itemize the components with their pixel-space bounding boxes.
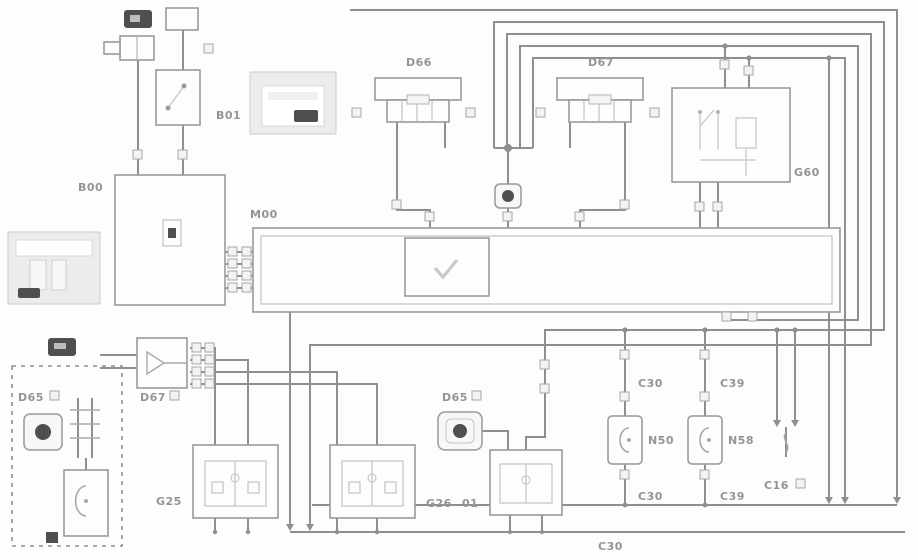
siren-connector <box>104 36 154 60</box>
label-c16: C16 <box>764 479 789 492</box>
connector-d66 <box>375 78 461 122</box>
lock-actuator-g26 <box>330 445 415 518</box>
label-g25: G25 <box>156 495 182 508</box>
label-n58: N58 <box>728 434 754 447</box>
label-c39-top: C39 <box>720 377 745 390</box>
label-d65-mid: D65 <box>442 391 468 404</box>
siren-icon <box>124 10 152 28</box>
lock-actuator-g25 <box>193 445 278 518</box>
label-b00: B00 <box>78 181 103 194</box>
label-b01: B01 <box>216 109 241 122</box>
harness-box-m00 <box>253 228 840 312</box>
junction-sensor-icon <box>495 184 521 208</box>
connector-d67 <box>557 78 643 122</box>
label-c30-top: C30 <box>638 377 663 390</box>
label-c30-ground: C30 <box>598 540 623 553</box>
legend-box-left <box>8 232 100 304</box>
label-g26: G26 <box>426 497 452 510</box>
label-m00: M00 <box>250 208 278 221</box>
label-d66: D66 <box>406 56 432 69</box>
lamp-n50 <box>608 416 642 464</box>
label-d67-left: D67 <box>140 391 166 404</box>
schematic-canvas: B00 B01 M00 D66 D67 G60 D67 D65 D65 G25 … <box>0 0 918 560</box>
control-unit-b00 <box>115 175 225 305</box>
door-icon <box>48 338 76 356</box>
inset-lamp <box>64 470 108 536</box>
label-c39-bottom: C39 <box>720 490 745 503</box>
check-box <box>405 238 489 296</box>
label-g26-sub: 01 <box>462 497 478 510</box>
legend-box-top <box>250 72 336 134</box>
relay-module-g60 <box>672 88 790 182</box>
key-switch-icon <box>24 414 62 450</box>
label-c30-bottom: C30 <box>638 490 663 503</box>
switch-symbol <box>166 8 198 30</box>
wiring-diagram-page: B00 B01 M00 D66 D67 G60 D67 D65 D65 G25 … <box>0 0 918 560</box>
label-n50: N50 <box>648 434 674 447</box>
fuse-switch-box <box>156 70 200 125</box>
label-d65-dash: D65 <box>18 391 44 404</box>
d65-switch-icon <box>438 412 482 450</box>
connector-d67-left <box>137 338 187 388</box>
lock-actuator-3 <box>490 450 562 515</box>
lamp-n58 <box>688 416 722 464</box>
label-g60: G60 <box>794 166 820 179</box>
label-d67: D67 <box>588 56 614 69</box>
